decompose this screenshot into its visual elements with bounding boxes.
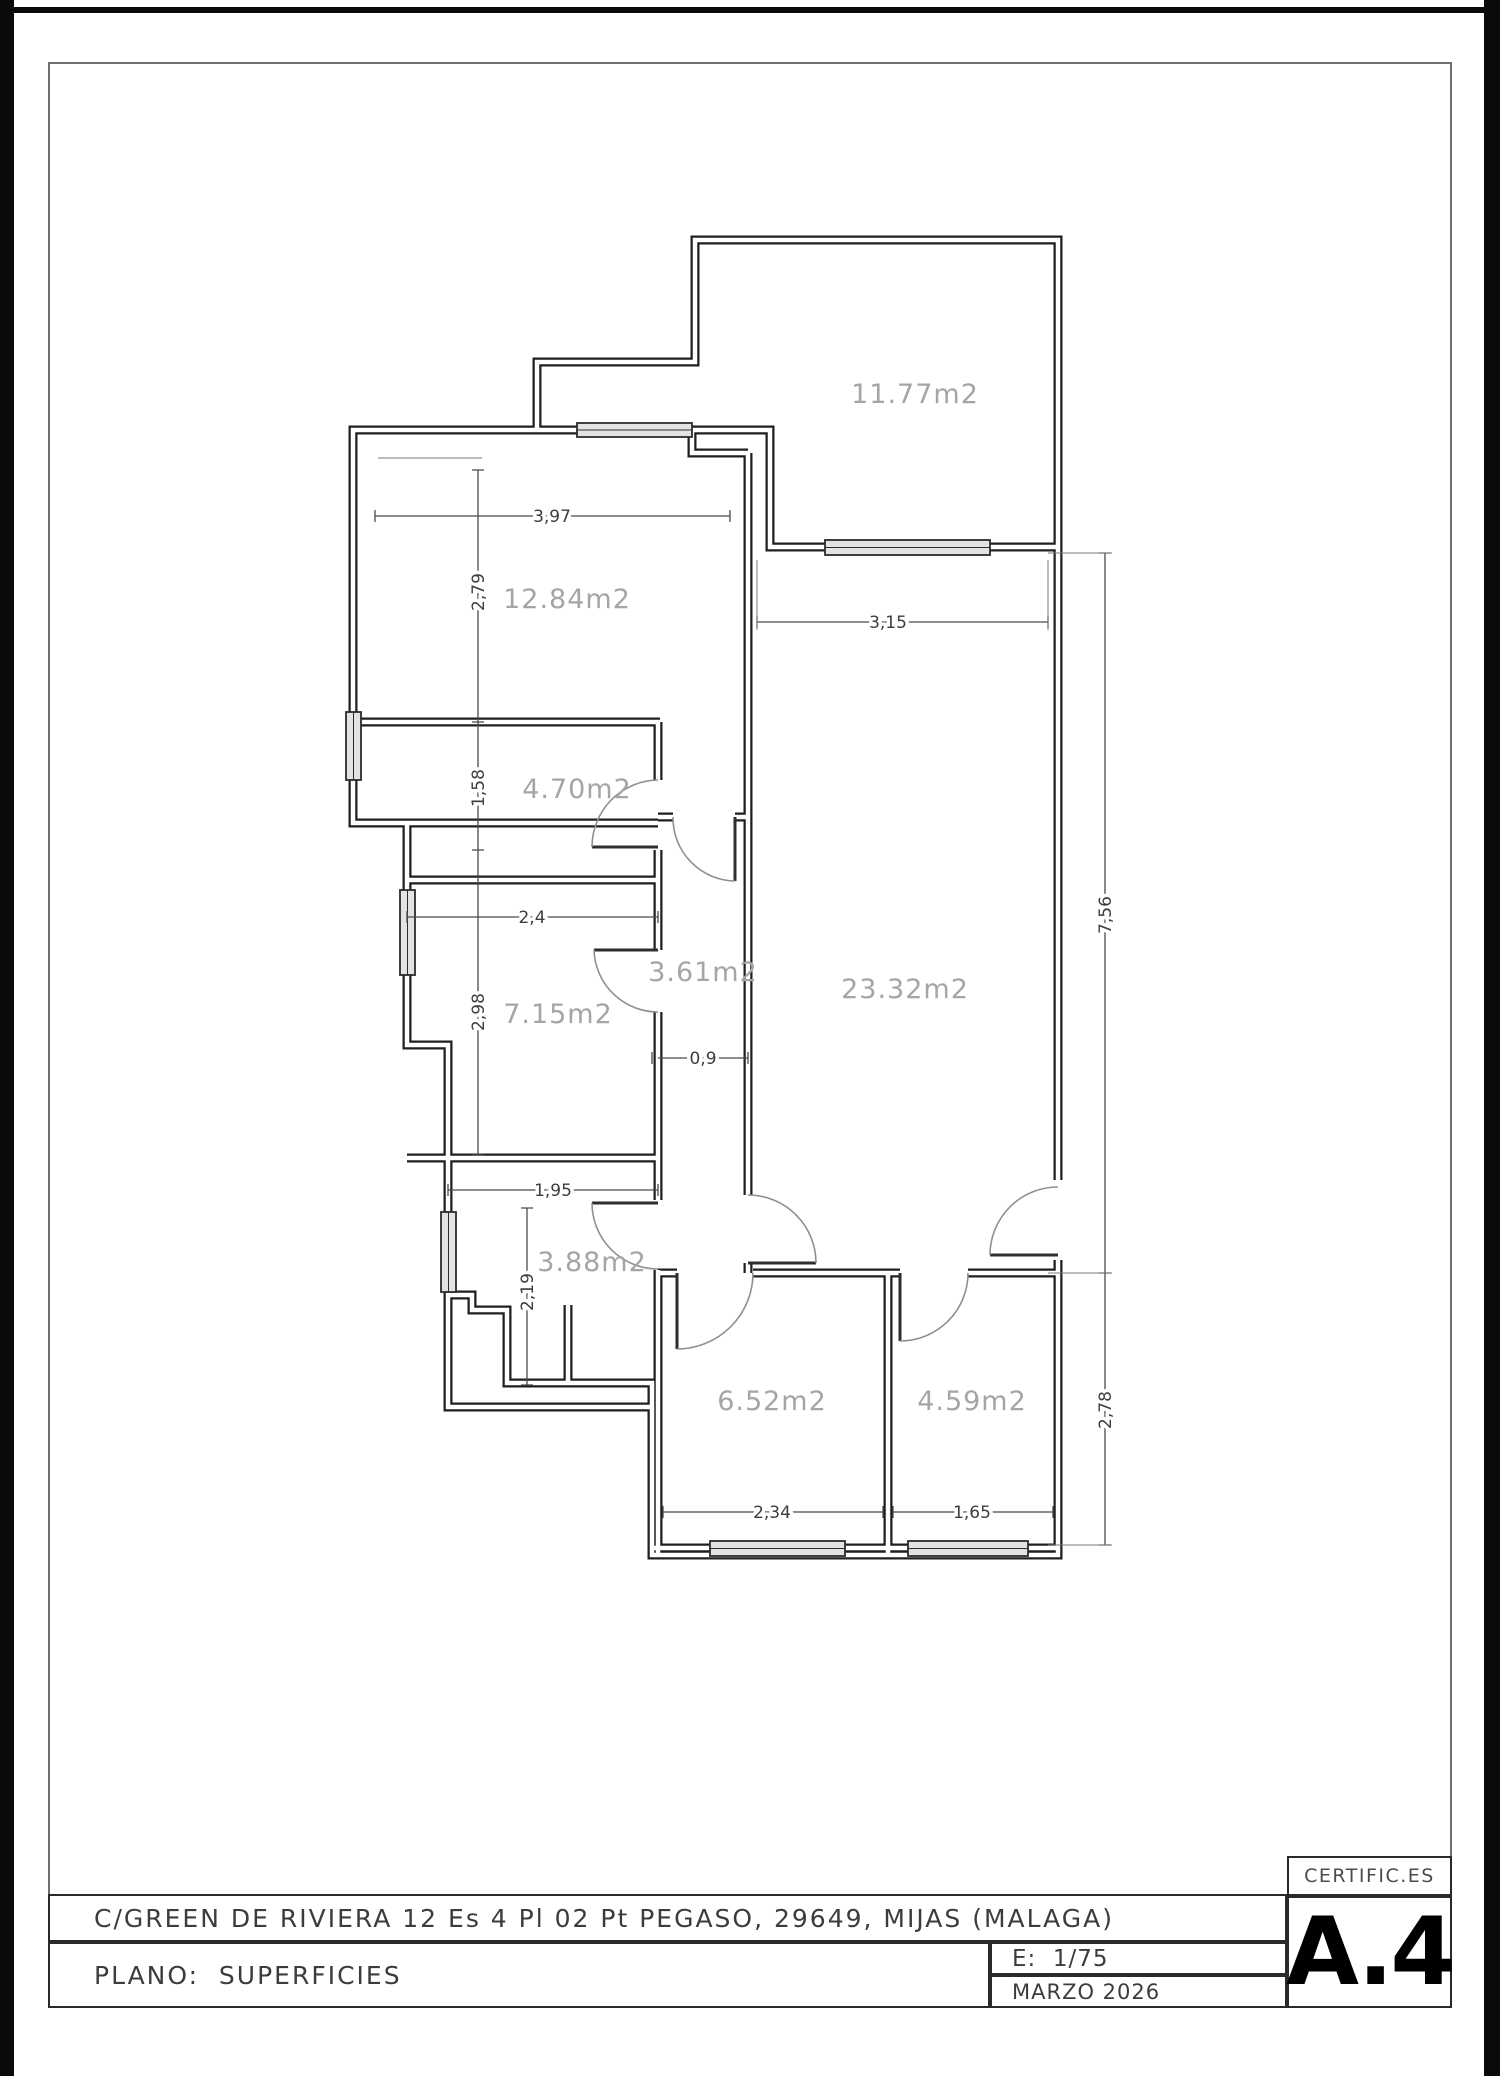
door-arc-entrance — [990, 1187, 1058, 1255]
dim-hall-width: 0,9 — [689, 1049, 716, 1069]
dim-main-right-width: 3,15 — [869, 613, 907, 633]
room-label-hall: 3.61m2 — [648, 957, 758, 988]
room-label-bottom-left: 3.88m2 — [537, 1247, 647, 1278]
dim-bottom-center-width: 2,34 — [753, 1503, 791, 1523]
room-label-top-left: 12.84m2 — [503, 584, 631, 615]
dim-mid-left-height: 2,98 — [469, 993, 489, 1031]
room-label-bottom-right: 4.59m2 — [917, 1386, 1027, 1417]
dim-mid-left-width: 2,4 — [518, 908, 545, 928]
room-label-mid-left: 7.15m2 — [503, 999, 613, 1030]
scale-text: E: 1/75 — [1012, 1946, 1109, 1972]
date-box: MARZO 2026 — [990, 1975, 1287, 2008]
door-arc-main-right — [748, 1195, 816, 1263]
plan-title-row: PLANO: SUPERFICIES — [48, 1942, 990, 2008]
room-labels: 11.77m2 12.84m2 4.70m2 3.61m2 7.15m2 23.… — [503, 379, 1027, 1417]
address-row: C/GREEN DE RIVIERA 12 Es 4 Pl 02 Pt PEGA… — [48, 1894, 1287, 1942]
room-label-bottom-center: 6.52m2 — [717, 1386, 827, 1417]
walls — [353, 240, 1058, 1555]
date-text: MARZO 2026 — [1012, 1980, 1160, 2004]
scale-box: E: 1/75 — [990, 1942, 1287, 1975]
door-arc-bottom-right — [900, 1273, 968, 1341]
door-arc-vestibule — [673, 817, 735, 881]
dim-bottom-left-width: 1,95 — [534, 1181, 572, 1201]
brand-label: CERTIFIC.ES — [1304, 1865, 1435, 1887]
dim-bottom-right-width: 1,65 — [953, 1503, 991, 1523]
door-arc-bottom-center — [677, 1273, 753, 1349]
room-label-main-right: 23.32m2 — [841, 974, 969, 1005]
sheet-code-text: A.4 — [1286, 1898, 1453, 2007]
floor-plan: 3,97 2,79 1,58 2,4 2,98 0,9 3,15 7,56 1,… — [0, 0, 1500, 2076]
dim-bottom-right-height: 2,78 — [1096, 1391, 1116, 1429]
dim-mid-left-small-height: 1,58 — [469, 769, 489, 807]
room-label-top-terrace: 11.77m2 — [851, 379, 979, 410]
dim-top-left-width: 3,97 — [533, 507, 571, 527]
dim-main-right-height: 7,56 — [1096, 896, 1116, 934]
plan-title-text: PLANO: SUPERFICIES — [94, 1961, 402, 1990]
dim-bottom-left-height: 2,19 — [518, 1273, 538, 1311]
room-label-mid-left-small: 4.70m2 — [522, 774, 632, 805]
drawing-sheet: 3,97 2,79 1,58 2,4 2,98 0,9 3,15 7,56 1,… — [0, 0, 1500, 2076]
sheet-code-box: A.4 — [1287, 1896, 1452, 2008]
address-text: C/GREEN DE RIVIERA 12 Es 4 Pl 02 Pt PEGA… — [94, 1904, 1114, 1933]
brand-box: CERTIFIC.ES — [1287, 1856, 1452, 1896]
dim-top-left-height: 2,79 — [469, 573, 489, 611]
